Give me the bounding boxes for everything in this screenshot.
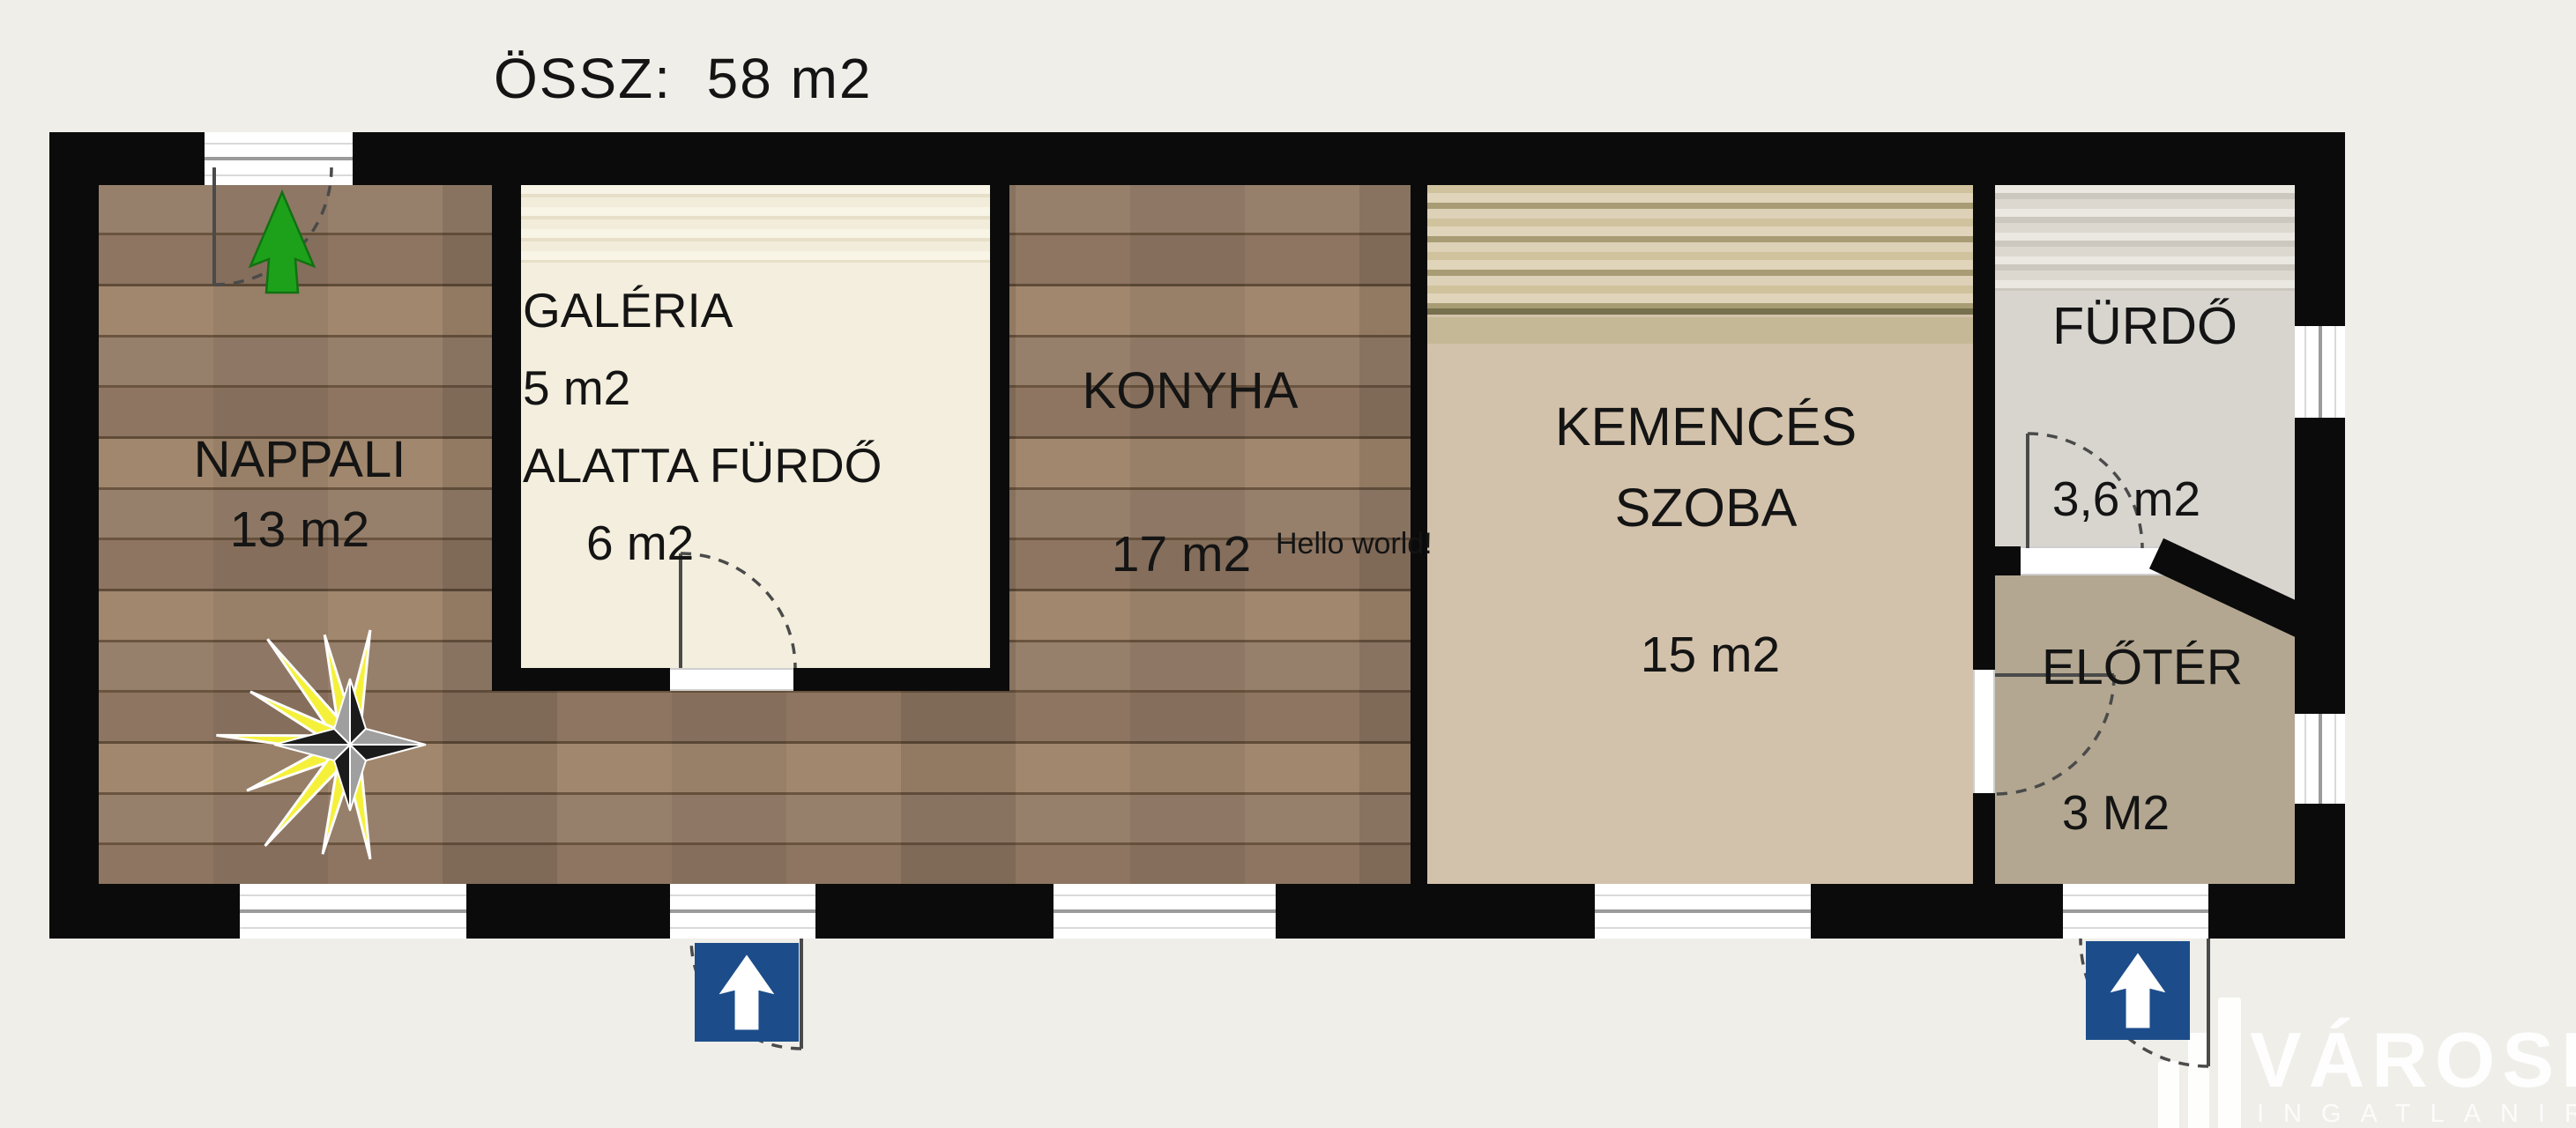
window [2295, 326, 2345, 418]
room-label-galeria: GALÉRIA 5 m2 ALATTA FÜRDŐ 6 m2 [523, 271, 882, 582]
wall [492, 668, 670, 691]
galeria-area: 5 m2 [523, 349, 882, 427]
furdo-tiles [1995, 185, 2295, 291]
entrance-door [670, 884, 815, 939]
room-area-furdo: 3,6 m2 [2003, 471, 2250, 527]
wall [2295, 418, 2345, 714]
room-label-furdo: FÜRDŐ [2017, 296, 2273, 356]
window [2295, 714, 2345, 804]
galeria-name: GALÉRIA [523, 271, 882, 349]
room-label-kemences-szoba: KEMENCÉS SZOBA [1472, 386, 1939, 548]
logo-subtitle-text: INGATLANIRODA [2257, 1100, 2576, 1128]
wall [49, 884, 240, 939]
room-area-kemences-szoba: 15 m2 [1534, 626, 1887, 684]
hello-world-annotation: Hello world! [1276, 527, 1433, 561]
galeria-note-area: 6 m2 [523, 504, 882, 582]
window [1053, 884, 1276, 939]
room-label-konyha: KONYHA [1005, 361, 1375, 420]
wall [1995, 546, 2021, 575]
wall [815, 884, 1053, 939]
wall [353, 132, 2345, 185]
furdo-door [2021, 546, 2164, 575]
wall [466, 884, 670, 939]
galeria-note: ALATTA FÜRDŐ [523, 427, 882, 504]
kemences-name-line2: SZOBA [1472, 467, 1939, 548]
wall [1276, 884, 1595, 939]
entrance-door [2063, 884, 2208, 939]
wall [2295, 804, 2345, 939]
wall [1973, 793, 1995, 884]
wall [49, 132, 99, 939]
kemences-szoba-tiles [1427, 185, 1973, 315]
floor-plan: ÖSSZ: 58 m2 [0, 0, 2576, 1128]
wall [990, 185, 1009, 691]
room-label-nappali: NAPPALI [150, 430, 450, 489]
entrance-arrow-icon [695, 943, 799, 1042]
galeria-tiles [521, 185, 990, 263]
kemences-szoba-band [1427, 317, 1973, 344]
total-area-title: ÖSSZ: 58 m2 [494, 46, 872, 111]
kemences-name-line1: KEMENCÉS [1472, 386, 1939, 467]
room-label-eloter: ELŐTÉR [2010, 638, 2274, 696]
galeria-door [670, 668, 793, 691]
logo-brand-text: VÁROSI [2250, 1015, 2576, 1105]
room-area-nappali: 13 m2 [150, 501, 450, 559]
wall [2295, 132, 2345, 326]
wall [793, 668, 1009, 691]
eloter-door [1973, 670, 1995, 793]
main-entrance-door [205, 132, 353, 185]
room-area-eloter: 3 M2 [2019, 784, 2213, 841]
wall [1973, 185, 1995, 670]
wall [1811, 884, 2063, 939]
entrance-arrow-icon [2086, 941, 2190, 1040]
window [1595, 884, 1811, 939]
wall [492, 185, 521, 691]
window [240, 884, 466, 939]
